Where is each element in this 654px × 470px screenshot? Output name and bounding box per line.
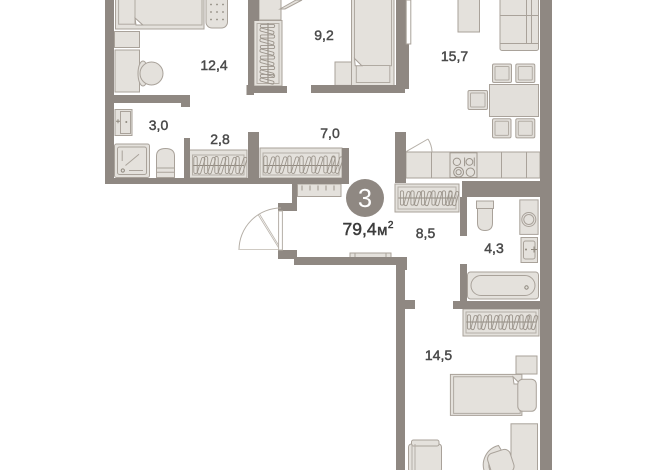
svg-text:8,5: 8,5 <box>416 225 436 241</box>
svg-text:12,4: 12,4 <box>200 57 227 73</box>
svg-text:79,4м2: 79,4м2 <box>343 219 394 239</box>
svg-text:9,2: 9,2 <box>314 27 334 43</box>
svg-text:3,0: 3,0 <box>149 117 169 133</box>
svg-text:15,7: 15,7 <box>441 48 468 64</box>
svg-text:4,3: 4,3 <box>484 240 504 256</box>
svg-text:2,8: 2,8 <box>210 131 230 147</box>
svg-text:3: 3 <box>358 185 372 213</box>
svg-text:14,5: 14,5 <box>425 347 452 363</box>
svg-text:7,0: 7,0 <box>320 125 340 141</box>
